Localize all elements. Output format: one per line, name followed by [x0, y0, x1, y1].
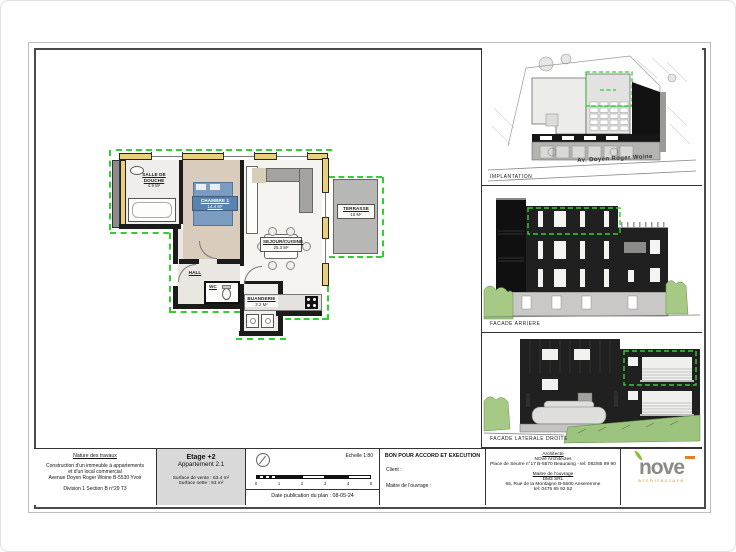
green-dash-hall-bottom — [170, 311, 240, 313]
publication-date: Date publication du plan : 08-05-24 — [246, 489, 379, 505]
wall — [239, 331, 283, 336]
facade-arriere-drawing — [482, 186, 702, 332]
chair-icon — [286, 227, 295, 236]
car-icon — [532, 407, 606, 424]
title-cell-approval: BON POUR ACCORD ET EXECUTION Client : Ma… — [380, 449, 486, 505]
balcony-lower — [640, 391, 694, 416]
architecte-address: Place de Seurre n°17 B-5570 Beauraing - … — [486, 462, 620, 467]
panel-facade-arriere: FACADE ARRIERE — [481, 186, 702, 333]
nature-line3: Avenue Doyen Roger Woine B-5530 Yvoir — [34, 475, 156, 481]
shower-inner — [132, 202, 172, 218]
north-arrow-icon — [256, 453, 270, 467]
green-dash-hall-left — [169, 233, 171, 313]
side-wall — [660, 92, 666, 152]
sofa-icon — [299, 168, 313, 213]
green-dash-top — [116, 149, 332, 151]
roof-left — [532, 78, 586, 134]
title-cell-logo: nove architecture — [621, 449, 702, 505]
title-cell-scale: Echelle 1:80 0 1 2 3 4 5 Date publicatio… — [246, 449, 380, 505]
room-label-sejour: SEJOUR/CUISINE 25.3 m² — [260, 237, 302, 252]
scale-num: 5 — [367, 481, 375, 486]
room-label-wc: WC — [206, 284, 220, 290]
surface-nette: Surface nette : 53 m² — [157, 481, 245, 486]
pillow-icon — [196, 184, 206, 190]
logo-subtext: architecture — [626, 478, 698, 483]
chair-icon — [286, 261, 295, 270]
scale-num: 0 — [252, 481, 260, 486]
green-dash-terrasse-bottom — [329, 256, 382, 258]
terrace-door-gap — [322, 192, 329, 218]
panel-implantation: Av. Doyen Roger Woine IMPLANTATION — [481, 48, 702, 186]
bush-right — [666, 281, 688, 315]
scale-num: 2 — [298, 481, 306, 486]
room-label-hall: HALL — [182, 270, 208, 276]
toilet-tank — [222, 285, 231, 289]
floor-plan: SALLE DE DOUCHE 4.9 m² CHAMBRE 1 14.4 m²… — [106, 146, 386, 344]
nature-line4: Division 1 Section B n°29 T3 — [34, 486, 156, 492]
stove-icon — [305, 296, 318, 309]
window-gap — [322, 238, 329, 264]
burner — [313, 298, 316, 301]
washer-drum — [265, 318, 271, 324]
roof-dark-wing — [632, 82, 660, 134]
client-label: Client : — [386, 467, 485, 473]
room-label-douche: SALLE DE DOUCHE 4.9 m² — [132, 172, 176, 188]
wall — [119, 224, 181, 229]
room-label-buanderie: BUANDERIE 3.2 m² — [245, 296, 278, 307]
party-wall — [112, 160, 120, 228]
building-right — [618, 228, 668, 292]
etage-subtitle: Appartement 2.1 — [157, 461, 245, 468]
scale-num: 1 — [275, 481, 283, 486]
chair-icon — [268, 261, 277, 270]
logo-text: nove — [639, 456, 684, 479]
exterior-wall-right — [322, 158, 329, 286]
maitre-ouvrage-label: Maitre de l'ouvrage : — [386, 483, 485, 489]
washer-drum — [250, 318, 256, 324]
view-label-facade-laterale: FACADE LATERALE DROITE — [490, 436, 568, 442]
burner — [307, 304, 310, 307]
pillow-icon — [210, 184, 220, 190]
title-cell-contacts: Architecte NOvé Architectes Place de Seu… — [486, 449, 621, 505]
echelle-label: Echelle 1:80 — [345, 453, 373, 459]
implantation-drawing — [482, 48, 702, 185]
panel-facade-laterale: FACADE LATERALE DROITE — [481, 333, 702, 448]
bush-left — [484, 397, 510, 431]
wall — [173, 304, 244, 309]
approval-title: BON POUR ACCORD ET EXECUTION — [380, 453, 485, 459]
chair-icon — [268, 227, 277, 236]
green-dash-terrasse-top — [329, 176, 382, 178]
green-dash-kitchen-bottom — [276, 318, 328, 320]
room-label-chambre: CHAMBRE 1 14.4 m² — [192, 196, 238, 211]
roof-step — [546, 114, 558, 126]
mo-tel: tel: 0475 65 92 52 — [486, 487, 620, 492]
green-dash-terrasse-right — [382, 177, 384, 257]
burner — [313, 304, 316, 307]
balcony-upper — [640, 357, 694, 382]
nove-logo: nove architecture — [626, 457, 698, 483]
scale-num: 3 — [321, 481, 329, 486]
burner — [307, 298, 310, 301]
drawing-sheet: SALLE DE DOUCHE 4.9 m² CHAMBRE 1 14.4 m²… — [0, 0, 736, 552]
green-dash-buanderie-bottom — [236, 338, 286, 340]
scale-num: 4 — [344, 481, 352, 486]
wall — [179, 160, 183, 224]
tower — [496, 200, 526, 292]
title-cell-etage: Etage +2 Appartement 2.1 Surface de vent… — [157, 449, 246, 505]
recessed-balcony — [624, 242, 646, 253]
etage-title: Etage +2 — [157, 454, 245, 461]
view-label-implantation: IMPLANTATION — [490, 174, 532, 180]
logo-macron — [685, 456, 695, 459]
nature-title: Nature des travaux — [34, 453, 156, 459]
title-cell-nature: Nature des travaux Construction d'un imm… — [34, 449, 157, 505]
title-block: Nature des travaux Construction d'un imm… — [34, 448, 702, 505]
room-label-terrasse: TERRASSE 10 m² — [337, 204, 375, 219]
door-gap — [199, 259, 217, 264]
view-label-facade-arriere: FACADE ARRIERE — [490, 321, 540, 327]
roof-cap — [496, 198, 526, 200]
entrance-door-gap — [173, 264, 178, 286]
chair-icon — [302, 242, 311, 251]
toilet-icon — [222, 288, 231, 300]
ground-line — [484, 433, 564, 435]
green-dash-left — [109, 150, 111, 230]
rug-icon — [252, 168, 266, 183]
facade-laterale-drawing — [482, 333, 702, 447]
scale-bar — [256, 475, 371, 479]
